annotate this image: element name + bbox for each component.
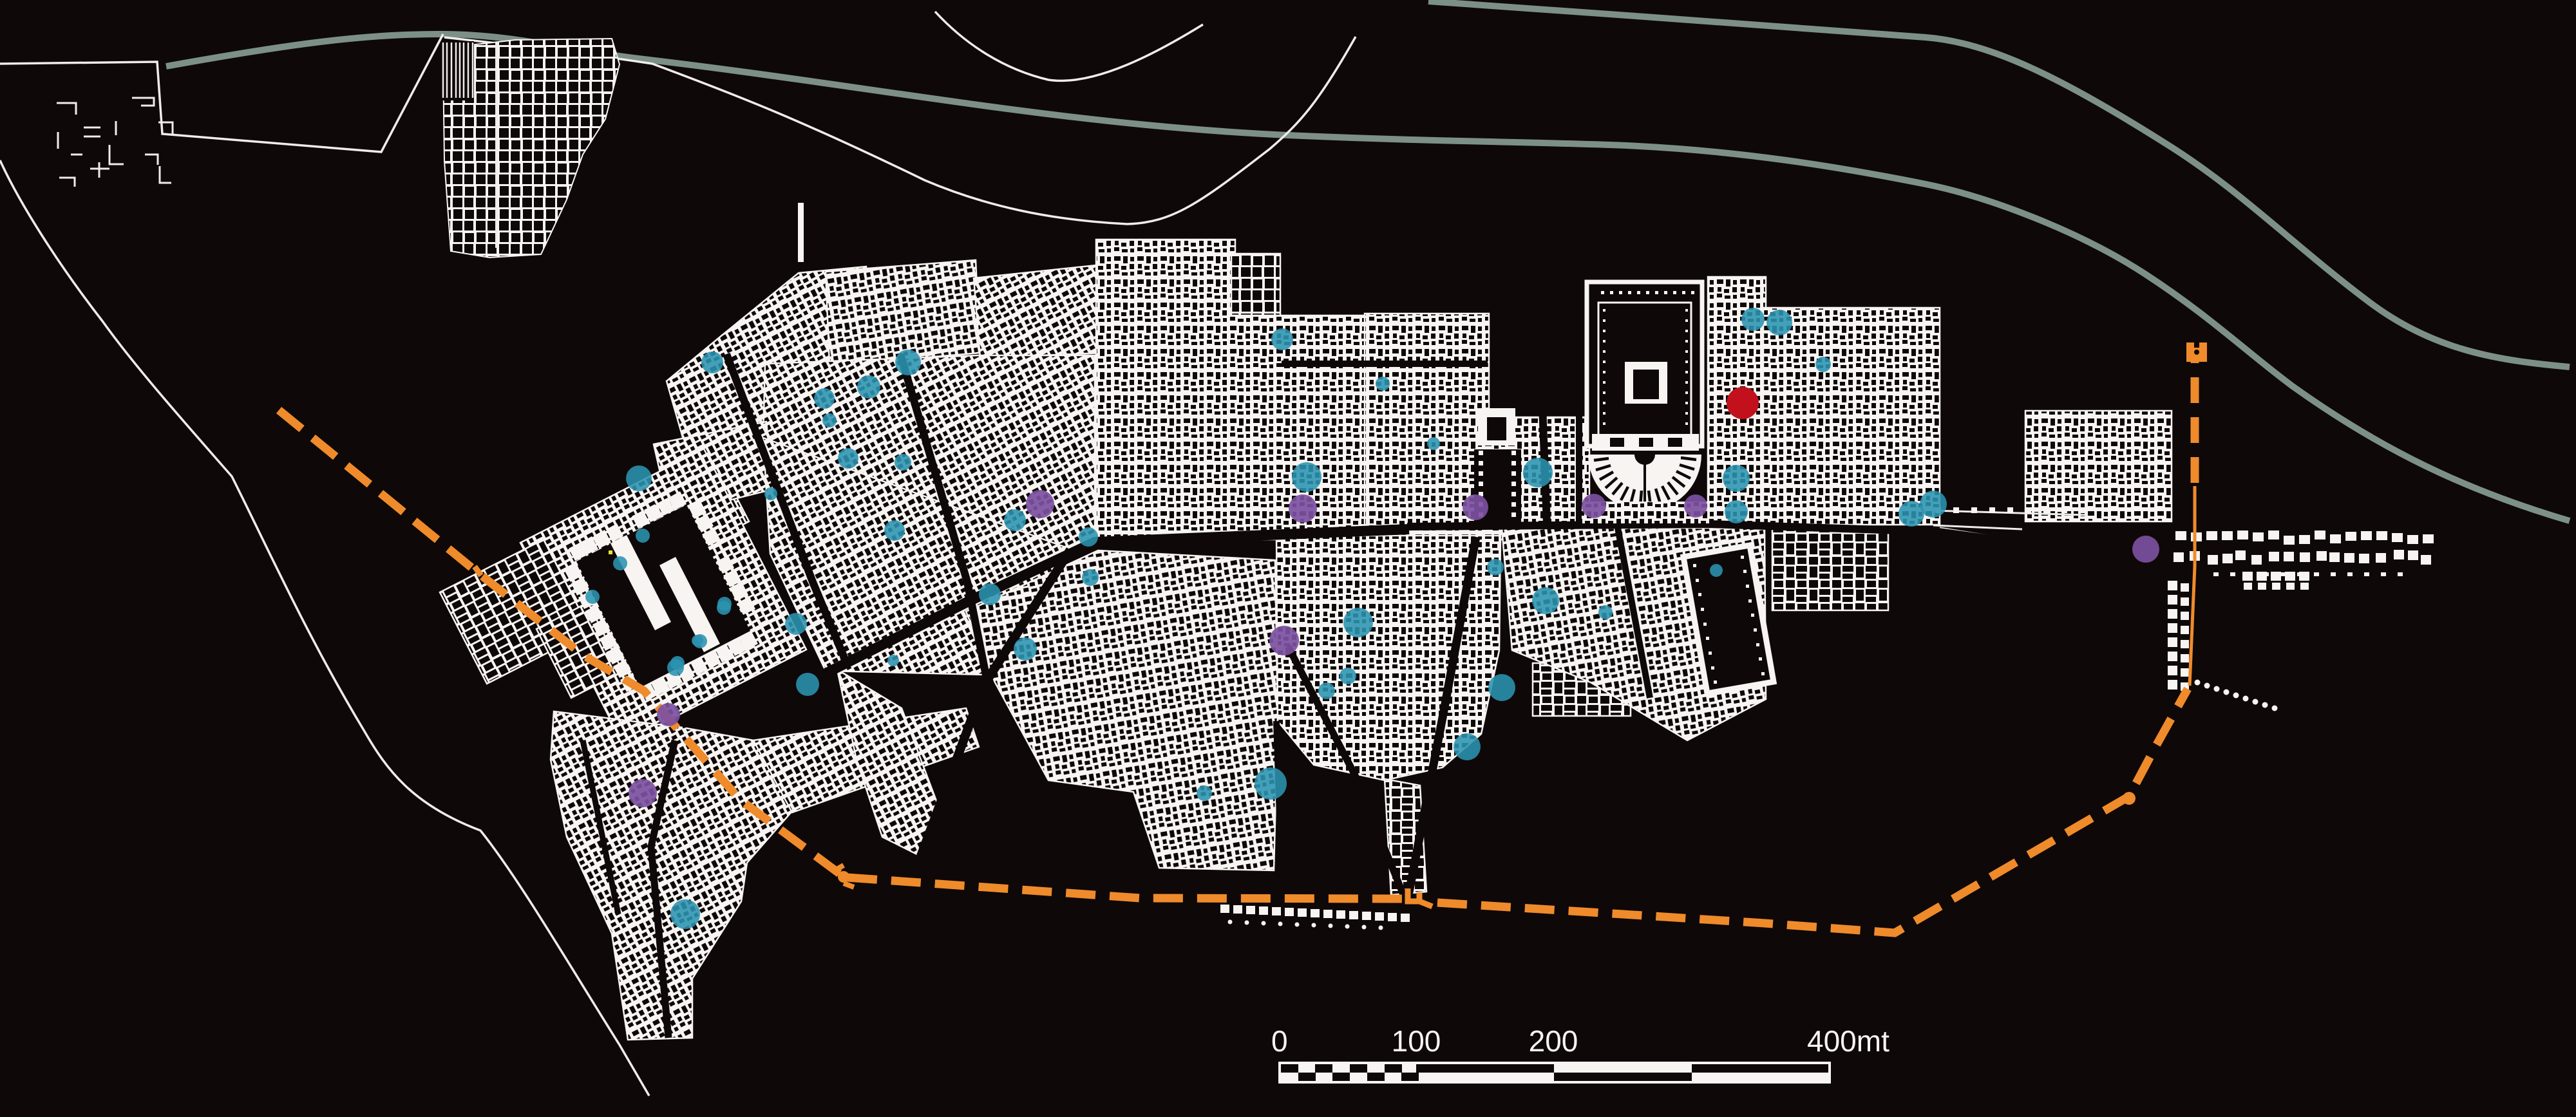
svg-text:400mt: 400mt [1807,1024,1889,1058]
svg-text:0: 0 [1271,1024,1288,1058]
svg-text:200: 200 [1529,1024,1578,1058]
svg-text:100: 100 [1392,1024,1441,1058]
